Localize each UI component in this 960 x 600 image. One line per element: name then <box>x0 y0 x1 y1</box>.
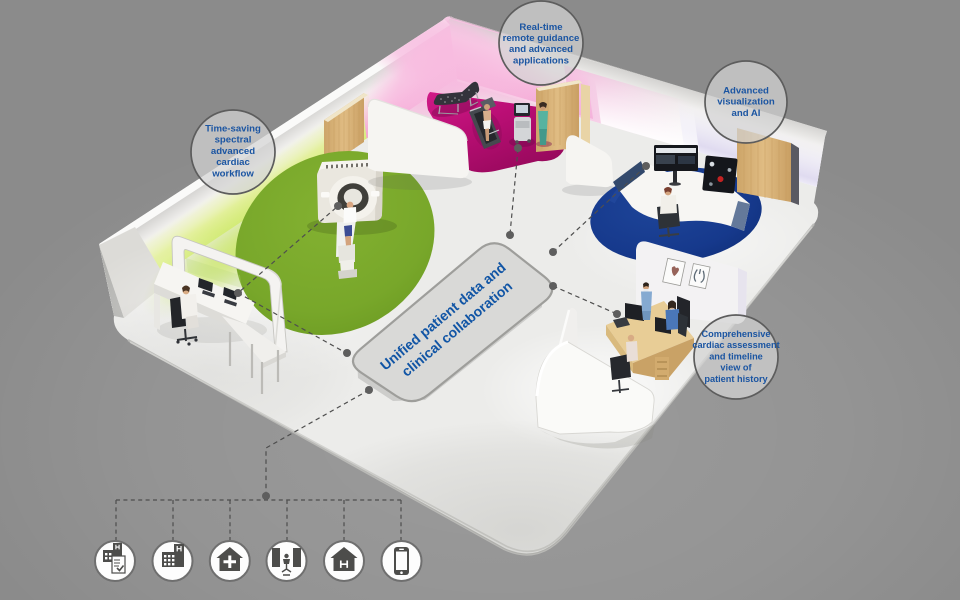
svg-text:Comprehensive: Comprehensive <box>702 329 771 339</box>
svg-text:Real-time: Real-time <box>519 22 562 33</box>
svg-text:cardiac assessment: cardiac assessment <box>692 340 779 350</box>
svg-text:Time-saving: Time-saving <box>205 123 261 134</box>
svg-text:workflow: workflow <box>211 169 254 180</box>
svg-text:cardiac: cardiac <box>216 157 250 168</box>
svg-text:advanced: advanced <box>211 146 255 157</box>
svg-text:remote guidance: remote guidance <box>503 33 580 44</box>
svg-text:and AI: and AI <box>732 108 761 119</box>
svg-text:spectral: spectral <box>215 135 252 146</box>
svg-text:and timeline: and timeline <box>709 351 763 361</box>
svg-text:patient history: patient history <box>704 374 768 384</box>
svg-text:visualization: visualization <box>717 97 775 108</box>
svg-text:and advanced: and advanced <box>509 44 573 55</box>
svg-text:applications: applications <box>513 55 569 66</box>
svg-text:Advanced: Advanced <box>723 85 769 96</box>
svg-text:view of: view of <box>720 363 752 373</box>
